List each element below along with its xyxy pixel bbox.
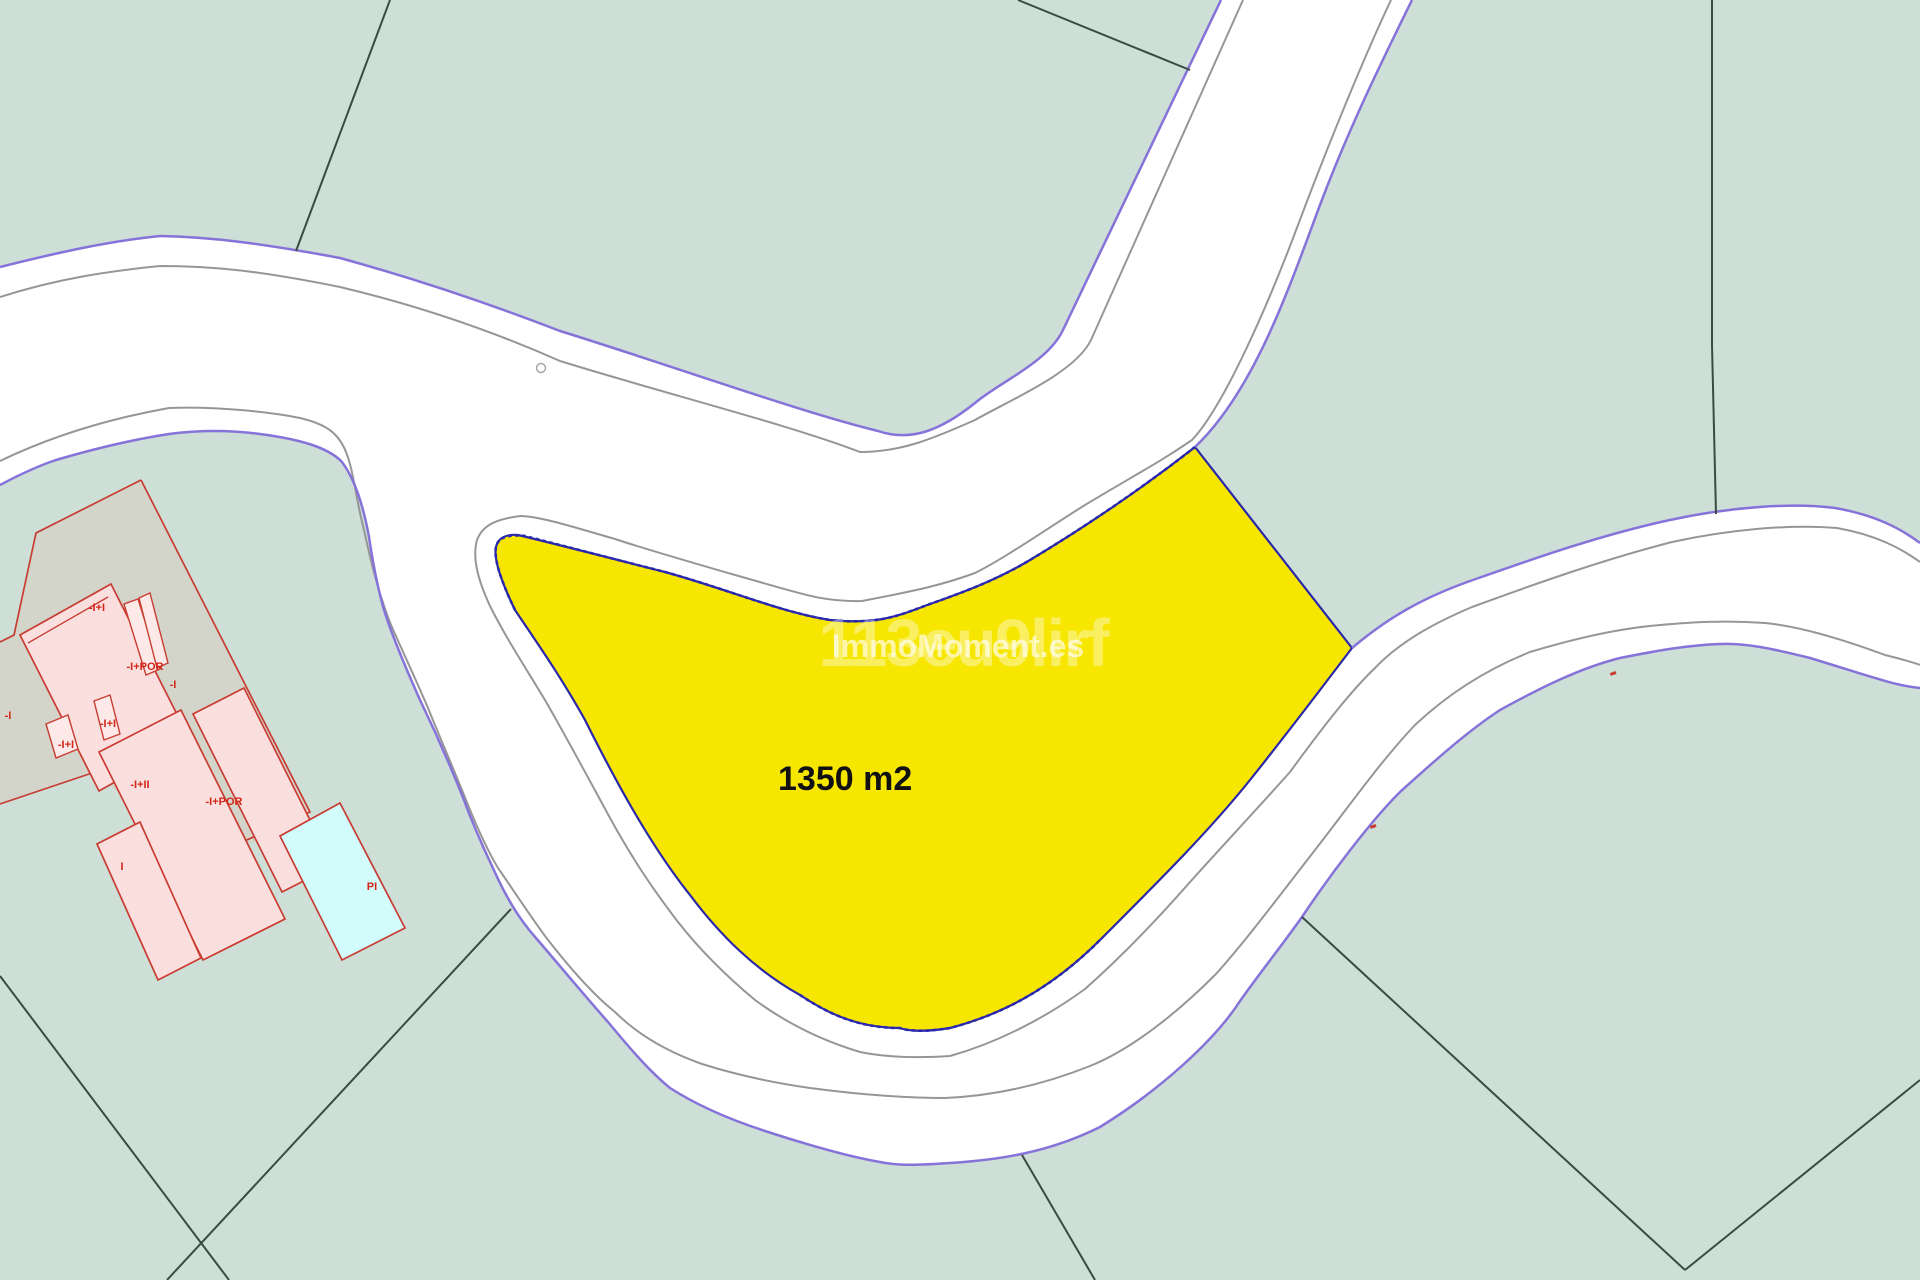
svg-text:-I: -I	[170, 679, 177, 691]
svg-text:1350 m2: 1350 m2	[778, 760, 912, 798]
svg-text:-I+POR: -I+POR	[127, 661, 164, 673]
svg-text:113eu9lirf: 113eu9lirf	[818, 606, 1110, 681]
svg-text:-I+I: -I+I	[58, 739, 74, 751]
svg-text:-I+POR: -I+POR	[206, 796, 243, 808]
svg-text:I: I	[120, 861, 123, 873]
svg-text:PI: PI	[367, 881, 377, 893]
svg-text:-I+II: -I+II	[130, 779, 149, 791]
svg-text:-I+I: -I+I	[100, 718, 116, 730]
svg-text:-I: -I	[5, 710, 12, 722]
svg-text:-I+I: -I+I	[89, 602, 105, 614]
